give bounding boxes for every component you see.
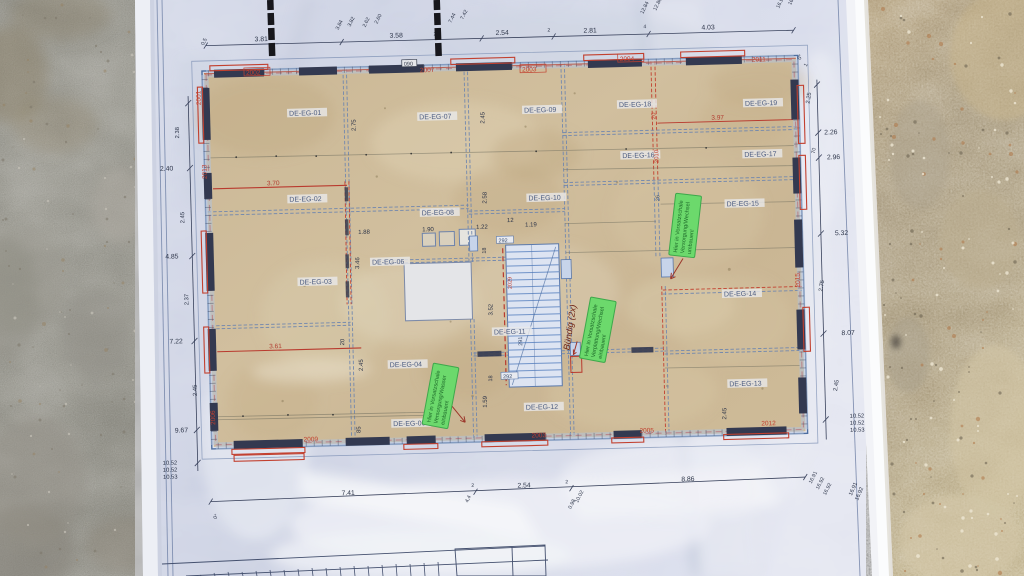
svg-text:3.52: 3.52 (488, 303, 494, 315)
svg-text:3.70: 3.70 (267, 180, 280, 187)
svg-text:70: 70 (811, 147, 818, 154)
svg-text:2009: 2009 (304, 436, 319, 443)
svg-text:DE-EG-18: DE-EG-18 (619, 101, 652, 109)
svg-text:10.52: 10.52 (163, 468, 178, 474)
svg-text:2.54: 2.54 (517, 482, 531, 489)
svg-text:2.58: 2.58 (483, 191, 489, 203)
svg-text:3.81: 3.81 (255, 36, 269, 43)
svg-text:10.52: 10.52 (163, 461, 178, 467)
svg-text:DE-EG-02: DE-EG-02 (289, 196, 322, 204)
svg-text:DE-EG-19: DE-EG-19 (745, 100, 778, 108)
svg-text:7.22: 7.22 (169, 338, 183, 345)
svg-text:DE-EG-16: DE-EG-16 (622, 152, 655, 160)
svg-text:20: 20 (651, 112, 657, 119)
svg-text:1.90: 1.90 (422, 227, 434, 233)
svg-text:2.45: 2.45 (480, 111, 486, 123)
svg-text:2.75: 2.75 (352, 119, 358, 131)
svg-text:10.53: 10.53 (850, 428, 865, 434)
svg-text:DE-EG-09: DE-EG-09 (524, 107, 557, 115)
svg-text:9.67: 9.67 (175, 427, 189, 434)
svg-text:18: 18 (488, 375, 494, 381)
svg-text:292: 292 (503, 374, 512, 380)
svg-text:2029: 2029 (507, 277, 513, 289)
svg-text:2.81: 2.81 (583, 27, 597, 34)
svg-text:2010: 2010 (654, 149, 660, 163)
svg-text:DE-EG-14: DE-EG-14 (724, 291, 757, 299)
svg-text:12: 12 (507, 218, 514, 224)
svg-text:DE-EG-05: DE-EG-05 (393, 420, 426, 428)
svg-text:10.52: 10.52 (850, 421, 865, 427)
svg-text:DE-EG-06: DE-EG-06 (372, 259, 405, 267)
svg-text:10.53: 10.53 (163, 475, 178, 481)
svg-text:2.26: 2.26 (824, 129, 838, 136)
svg-text:2.96: 2.96 (827, 154, 841, 161)
svg-text:2002: 2002 (246, 70, 261, 77)
svg-text:2.45: 2.45 (359, 359, 365, 371)
svg-text:3.61: 3.61 (269, 343, 282, 350)
svg-text:1.88: 1.88 (358, 230, 370, 236)
svg-text:2013: 2013 (201, 164, 208, 179)
svg-text:DE-EG-10: DE-EG-10 (528, 195, 561, 203)
svg-text:2003: 2003 (532, 432, 547, 439)
svg-text:2: 2 (565, 479, 568, 485)
svg-text:DE-EG-17: DE-EG-17 (744, 151, 777, 159)
svg-text:2.45: 2.45 (722, 407, 728, 419)
svg-text:2.54: 2.54 (495, 30, 509, 37)
svg-text:2005: 2005 (639, 427, 654, 434)
svg-text:7.41: 7.41 (341, 490, 355, 497)
svg-text:DE-EG-03: DE-EG-03 (299, 279, 332, 287)
svg-text:2.45: 2.45 (193, 385, 199, 396)
svg-text:5.32: 5.32 (835, 230, 849, 237)
svg-text:3.97: 3.97 (711, 114, 724, 121)
svg-text:2003: 2003 (522, 66, 537, 73)
svg-text:26: 26 (655, 195, 661, 201)
svg-text:2011: 2011 (752, 56, 767, 63)
svg-text:4: 4 (643, 24, 646, 30)
svg-text:DE-EG-07: DE-EG-07 (419, 114, 452, 122)
svg-text:292: 292 (498, 238, 507, 244)
svg-text:DE-EG-08: DE-EG-08 (422, 210, 455, 218)
svg-text:1.22: 1.22 (476, 225, 488, 231)
svg-text:2012: 2012 (761, 420, 776, 427)
svg-text:2.40: 2.40 (160, 166, 174, 173)
svg-text:8.86: 8.86 (681, 476, 695, 483)
svg-text:2001: 2001 (195, 90, 202, 105)
svg-text:DE-EG-15: DE-EG-15 (727, 201, 760, 209)
svg-text:3.46: 3.46 (355, 257, 361, 269)
svg-text:DE-EG-11: DE-EG-11 (494, 329, 526, 337)
svg-text:1.59: 1.59 (483, 395, 489, 407)
svg-text:2.38: 2.38 (175, 127, 181, 138)
svg-text:090: 090 (404, 62, 413, 68)
svg-text:2004: 2004 (620, 56, 635, 63)
svg-text:4.03: 4.03 (701, 24, 715, 31)
svg-text:DE-EG-12: DE-EG-12 (526, 404, 559, 412)
svg-text:2007: 2007 (420, 67, 435, 74)
svg-text:8.07: 8.07 (841, 330, 855, 337)
svg-text:DE-EG-13: DE-EG-13 (729, 381, 762, 389)
svg-text:2006: 2006 (210, 410, 217, 425)
svg-text:10.52: 10.52 (850, 414, 865, 420)
svg-text:291: 291 (518, 337, 524, 346)
svg-text:85: 85 (356, 426, 362, 433)
svg-text:18: 18 (482, 248, 488, 254)
svg-text:4.85: 4.85 (165, 253, 179, 260)
svg-text:2015: 2015 (794, 273, 801, 288)
svg-text:2.37: 2.37 (184, 294, 190, 305)
svg-text:1.19: 1.19 (525, 222, 537, 228)
svg-text:2: 2 (471, 483, 474, 489)
svg-text:20: 20 (340, 338, 346, 345)
svg-text:DE-EG-04: DE-EG-04 (390, 361, 423, 369)
svg-text:2.45: 2.45 (180, 212, 186, 223)
svg-text:DE-EG-01: DE-EG-01 (289, 110, 322, 118)
svg-text:2: 2 (547, 28, 550, 34)
svg-text:3.58: 3.58 (389, 32, 403, 39)
